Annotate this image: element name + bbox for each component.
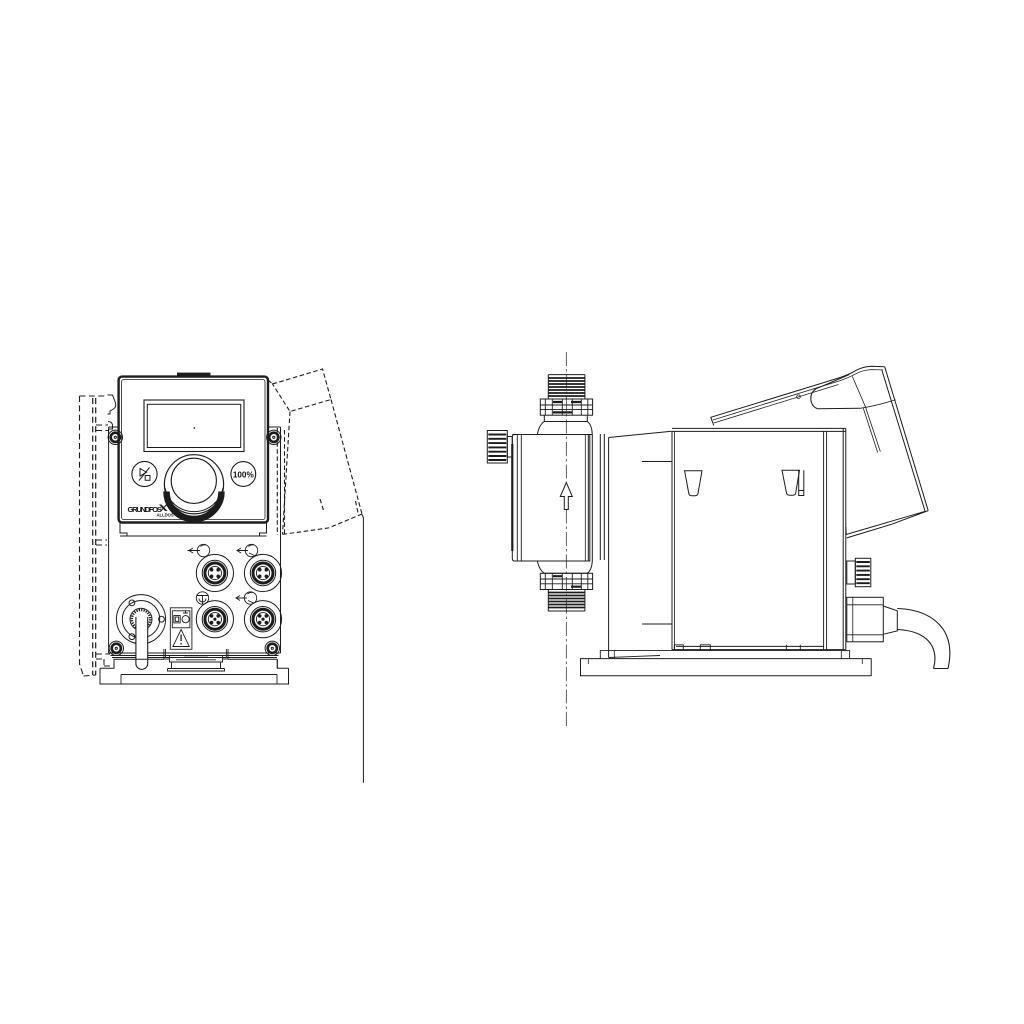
svg-text:100%: 100% [233, 470, 255, 479]
svg-text:ALLDOS: ALLDOS [157, 513, 174, 518]
